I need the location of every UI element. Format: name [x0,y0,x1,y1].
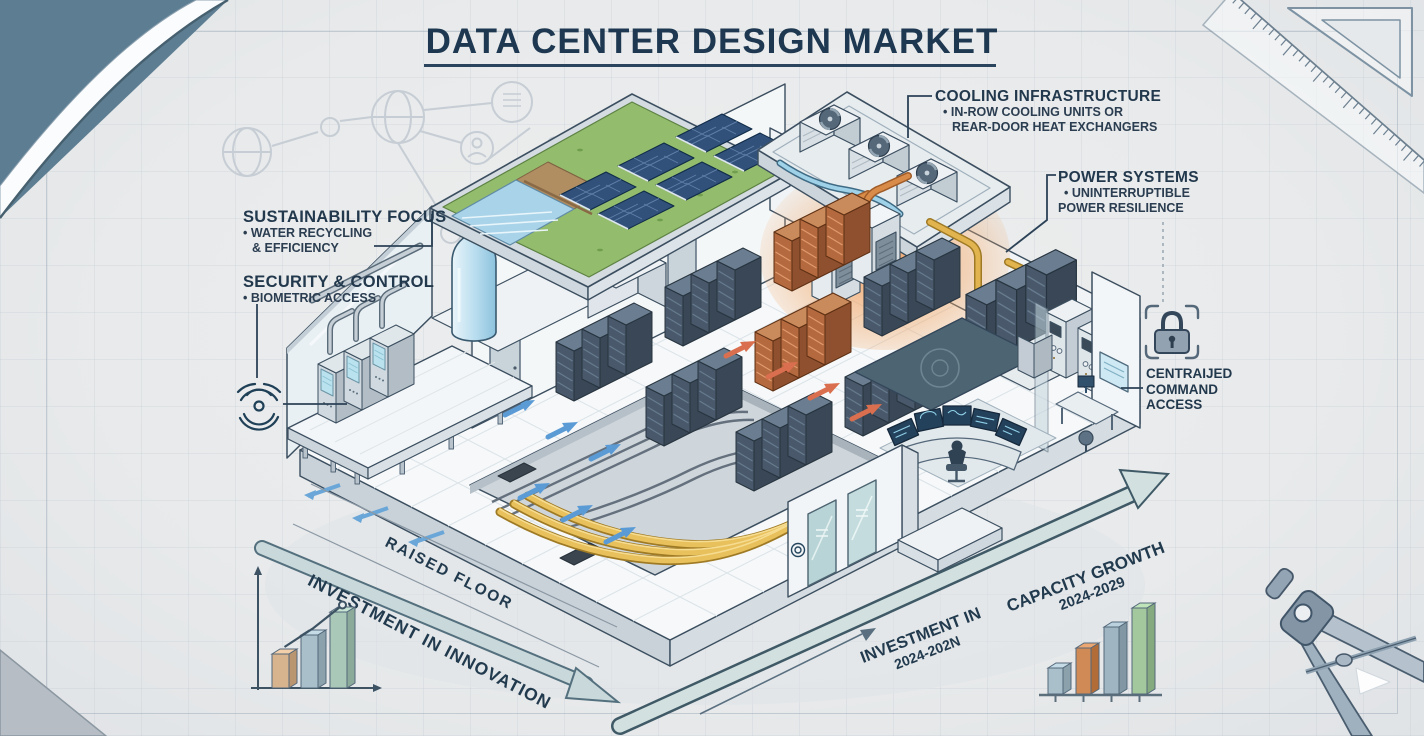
mini-chart-innovation [238,556,392,712]
corner-triangle [0,650,106,736]
glass-door [808,500,836,586]
callout-sustainability: SUSTAINABILITY FOCUS • WATER RECYCLING &… [243,209,446,255]
cooling-heading: COOLING INFRASTRUCTURE [935,88,1161,105]
fingerprint-icon [238,384,280,430]
compass-icon [1264,566,1424,736]
callout-power: POWER SYSTEMS • UNINTERRUPTIBLE POWER RE… [1058,169,1199,215]
cooling-bullet: • IN-ROW COOLING UNITS OR [943,105,1161,120]
blueprint-canvas: DATA CENTER DESIGN MARKET COOLING INFRAS… [0,0,1424,736]
office-chair [1079,431,1093,445]
sustainability-bullet: & EFFICIENCY [243,241,446,256]
title-underline [424,64,996,67]
security-bullet: • BIOMETRIC ACCESS [243,291,434,306]
power-heading: POWER SYSTEMS [1058,169,1199,186]
lock-icon [1146,306,1198,358]
glass-door [848,480,876,566]
callout-security: SECURITY & CONTROL • BIOMETRIC ACCESS [243,274,434,306]
security-heading: SECURITY & CONTROL [243,274,434,291]
command-line: ACCESS [1146,397,1232,413]
page-title: DATA CENTER DESIGN MARKET [0,22,1424,62]
command-line: COMMAND [1146,382,1232,398]
mini-chart-capacity [1034,576,1184,714]
power-bullet: • UNINTERRUPTIBLE [1064,186,1199,201]
callout-command: CENTRAIJED COMMAND ACCESS [1146,366,1232,413]
sustainability-heading: SUSTAINABILITY FOCUS [243,209,446,226]
callout-cooling: COOLING INFRASTRUCTURE • IN-ROW COOLING … [935,88,1161,134]
sustainability-bullet: • WATER RECYCLING [243,226,446,241]
power-bullet: POWER RESILIENCE [1058,201,1199,216]
command-line: CENTRAIJED [1146,366,1232,382]
cooling-bullet: REAR-DOOR HEAT EXCHANGERS [943,120,1161,135]
